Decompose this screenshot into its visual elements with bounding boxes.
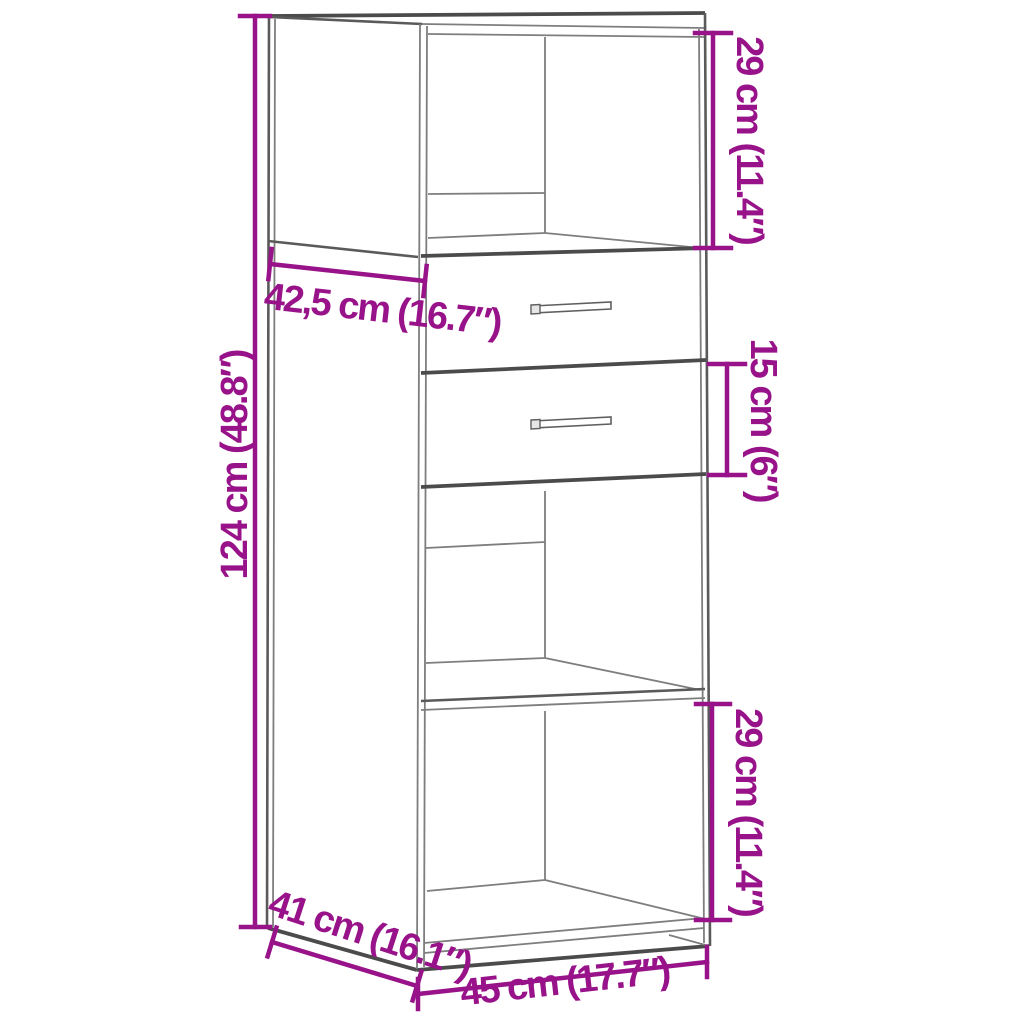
right-outer-edge	[705, 13, 710, 946]
top-back-edge	[269, 13, 705, 16]
bottom-floor-front-edge	[424, 918, 704, 943]
dimension-tick	[423, 266, 426, 296]
dimension-drawer-height: 15 cm (6″)	[709, 339, 784, 502]
shelf-top-left-edge	[426, 658, 545, 663]
dimension-label: 124 cm (48.8″)	[214, 350, 256, 579]
front-left-edge-outer	[417, 24, 420, 969]
handle-bar	[533, 302, 611, 313]
drawer-2-handle	[531, 417, 611, 429]
dimension-label: 29 cm (11.4″)	[728, 36, 770, 244]
left-inner-edge	[273, 19, 275, 927]
middle-compartment	[421, 491, 705, 710]
top-front-edge	[422, 24, 705, 28]
drawer-divider-edge	[421, 360, 706, 373]
dimension-label: 15 cm (6″)	[742, 339, 784, 502]
top-niche	[421, 34, 706, 256]
shelf-top-back-edge	[545, 658, 700, 690]
right-inner-edge	[699, 29, 704, 943]
dimension-tick	[268, 249, 271, 279]
dimension-top-depth: 42,5 cm (16.7″)	[262, 249, 503, 344]
dimension-depth: 41 cm (16.1″)	[263, 882, 476, 1000]
niche-floor-back-edge	[545, 233, 701, 248]
bottom-floor-left-edge	[427, 880, 545, 891]
cabinet-outline	[267, 13, 710, 970]
niche-floor-left-edge	[428, 233, 545, 238]
bottom-compartment	[424, 711, 709, 953]
furniture-dimension-diagram: 124 cm (48.8″) 29 cm (11.4″) 42,5 cm (16…	[0, 0, 1024, 1024]
cabinet-line-art	[267, 13, 710, 970]
side-top-edge	[269, 17, 422, 24]
niche-ceiling-edge	[428, 34, 704, 37]
dimension-label: 29 cm (11.4″)	[727, 708, 769, 916]
dimension-total-height: 124 cm (48.8″)	[214, 16, 270, 927]
left-outer-edge	[267, 17, 269, 928]
middle-back-panel-edge	[426, 542, 545, 548]
niche-back-panel-edge	[428, 193, 545, 194]
dimension-annotations: 124 cm (48.8″) 29 cm (11.4″) 42,5 cm (16…	[214, 16, 784, 1014]
handle-bar	[533, 417, 611, 428]
handle-cap	[531, 420, 540, 430]
drawer-bottom-edge	[421, 474, 706, 487]
bottom-floor-back-edge	[545, 880, 701, 918]
dimension-bottom-compartment-height: 29 cm (11.4″)	[696, 704, 769, 920]
side-panel-seam	[268, 241, 418, 257]
right-foot-edge	[669, 935, 709, 946]
front-left-edge-inner	[424, 26, 427, 967]
dimension-label: 42,5 cm (16.7″)	[262, 276, 503, 345]
handle-cap	[531, 305, 540, 315]
niche-floor-front-edge	[421, 248, 706, 256]
dimension-diagram-canvas: 124 cm (48.8″) 29 cm (11.4″) 42,5 cm (16…	[0, 0, 1024, 1024]
drawer-1-handle	[531, 302, 611, 314]
